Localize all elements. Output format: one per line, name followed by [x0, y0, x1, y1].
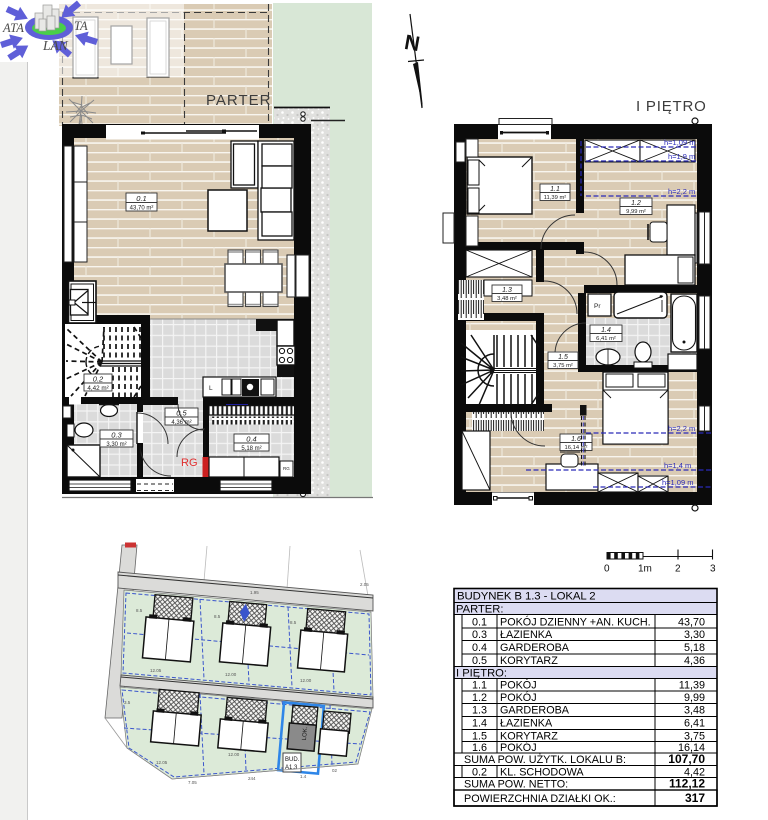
svg-text:3.5: 3.5 — [124, 700, 131, 705]
svg-text:12.05: 12.05 — [156, 760, 168, 765]
svg-text:4,42 m²: 4,42 m² — [87, 385, 108, 392]
svg-text:107,70: 107,70 — [668, 752, 705, 766]
svg-text:0.5: 0.5 — [472, 655, 487, 667]
svg-text:PARTER: PARTER — [206, 92, 271, 109]
svg-text:0.2: 0.2 — [472, 767, 487, 779]
svg-text:3: 3 — [710, 564, 716, 575]
svg-text:POKÓJ: POKÓJ — [500, 679, 537, 692]
svg-text:02: 02 — [332, 768, 338, 773]
svg-text:1.4: 1.4 — [472, 718, 487, 730]
svg-text:317: 317 — [685, 791, 705, 805]
svg-text:KORYTARZ: KORYTARZ — [500, 731, 558, 743]
svg-text:BUDYNEK B 1.3 - LOKAL 2: BUDYNEK B 1.3 - LOKAL 2 — [457, 591, 595, 603]
svg-text:BUD.: BUD. — [285, 757, 300, 763]
svg-text:43,70: 43,70 — [678, 617, 705, 629]
svg-text:I PIĘTRO: I PIĘTRO — [636, 98, 707, 115]
svg-text:4,36: 4,36 — [684, 655, 705, 667]
svg-text:1.5: 1.5 — [558, 354, 568, 361]
svg-text:1.3: 1.3 — [502, 287, 512, 294]
svg-text:POKÓJ DZIENNY +AN. KUCH.: POKÓJ DZIENNY +AN. KUCH. — [500, 616, 651, 629]
svg-text:POKÓJ: POKÓJ — [500, 691, 537, 704]
svg-text:0.3: 0.3 — [111, 431, 122, 440]
svg-text:244: 244 — [248, 776, 256, 781]
svg-text:h=1,09 m: h=1,09 m — [662, 478, 693, 487]
svg-text:1.3: 1.3 — [472, 705, 487, 717]
svg-text:1.4: 1.4 — [601, 327, 611, 334]
svg-text:6,41 m²: 6,41 m² — [596, 336, 616, 342]
svg-text:6,41: 6,41 — [684, 718, 705, 730]
svg-text:7.05: 7.05 — [188, 780, 197, 785]
svg-text:3,30: 3,30 — [684, 629, 705, 641]
svg-text:PARTER:: PARTER: — [456, 604, 503, 616]
svg-text:0.2: 0.2 — [93, 375, 104, 384]
svg-text:TA: TA — [74, 19, 88, 33]
svg-text:h=1,9 m: h=1,9 m — [668, 152, 695, 161]
svg-text:1m: 1m — [638, 564, 652, 575]
svg-text:ŁAZIENKA: ŁAZIENKA — [500, 629, 553, 641]
svg-text:9,99 m²: 9,99 m² — [626, 209, 646, 215]
svg-text:KL. SCHODOWA: KL. SCHODOWA — [500, 767, 584, 779]
svg-text:1.6: 1.6 — [571, 436, 581, 443]
svg-text:RG: RG — [283, 466, 290, 471]
svg-text:SUMA POW. UŻYTK. LOKALU B:: SUMA POW. UŻYTK. LOKALU B: — [464, 753, 626, 766]
svg-text:0.3: 0.3 — [472, 629, 487, 641]
svg-text:1.1: 1.1 — [472, 680, 487, 692]
svg-text:ATA: ATA — [2, 21, 24, 35]
svg-text:L: L — [209, 385, 213, 392]
svg-text:8.5: 8.5 — [136, 608, 143, 613]
svg-text:1.2: 1.2 — [631, 200, 641, 207]
svg-text:GARDEROBA: GARDEROBA — [500, 705, 570, 717]
svg-text:KORYTARZ: KORYTARZ — [500, 655, 558, 667]
svg-text:2: 2 — [675, 564, 681, 575]
svg-text:1.1: 1.1 — [550, 186, 560, 193]
svg-text:5,18: 5,18 — [684, 642, 705, 654]
svg-text:SUMA POW. NETTO:: SUMA POW. NETTO: — [464, 779, 568, 791]
svg-text:POKÓJ: POKÓJ — [500, 741, 537, 754]
svg-text:1.95: 1.95 — [250, 590, 259, 595]
svg-text:12.00: 12.00 — [300, 678, 312, 683]
svg-text:11,39 m²: 11,39 m² — [544, 195, 567, 201]
svg-text:h=2,2 m: h=2,2 m — [668, 187, 695, 196]
svg-text:11,39: 11,39 — [679, 680, 705, 692]
svg-text:0.1: 0.1 — [472, 617, 487, 629]
svg-text:h=2,2 m: h=2,2 m — [668, 424, 695, 433]
svg-text:ŁAZIENKA: ŁAZIENKA — [500, 718, 553, 730]
svg-text:h=1,09 m: h=1,09 m — [664, 138, 695, 147]
svg-text:0.4: 0.4 — [472, 642, 487, 654]
svg-text:16,14 m²: 16,14 m² — [565, 445, 588, 451]
svg-text:12.05: 12.05 — [150, 668, 162, 673]
svg-text:POWIERZCHNIA DZIAŁKI OK.:: POWIERZCHNIA DZIAŁKI OK.: — [464, 793, 616, 805]
svg-text:1.4: 1.4 — [300, 774, 307, 779]
svg-text:43,70 m²: 43,70 m² — [130, 206, 154, 212]
svg-text:0.4: 0.4 — [246, 435, 256, 444]
svg-text:9,99: 9,99 — [684, 692, 705, 704]
svg-text:2.05: 2.05 — [360, 582, 369, 587]
svg-text:3,75: 3,75 — [684, 731, 705, 743]
svg-text:5,18 m²: 5,18 m² — [241, 446, 261, 452]
svg-text:3,48: 3,48 — [684, 705, 705, 717]
svg-text:12.00: 12.00 — [225, 672, 237, 677]
svg-text:3,30 m²: 3,30 m² — [106, 442, 126, 448]
svg-text:1.5: 1.5 — [472, 731, 487, 743]
svg-text:12.00: 12.00 — [228, 752, 240, 757]
svg-text:h=1,4 m: h=1,4 m — [664, 461, 691, 470]
svg-text:1.2: 1.2 — [472, 692, 487, 704]
svg-text:3,75 m²: 3,75 m² — [553, 363, 573, 369]
svg-text:112,12: 112,12 — [669, 777, 705, 791]
svg-text:0.5: 0.5 — [176, 409, 187, 418]
svg-text:Pr: Pr — [594, 303, 601, 310]
svg-text:LAN: LAN — [42, 38, 69, 53]
svg-text:8.5: 8.5 — [290, 620, 297, 625]
svg-text:0: 0 — [604, 564, 610, 575]
svg-text:3,48 m²: 3,48 m² — [497, 296, 517, 302]
svg-text:GARDEROBA: GARDEROBA — [500, 642, 570, 654]
svg-text:8.5: 8.5 — [214, 614, 221, 619]
svg-text:1.6: 1.6 — [472, 742, 487, 754]
svg-text:0.1: 0.1 — [136, 194, 146, 203]
svg-text:I PIĘTRO:: I PIĘTRO: — [456, 668, 507, 680]
svg-text:RG: RG — [181, 457, 198, 469]
